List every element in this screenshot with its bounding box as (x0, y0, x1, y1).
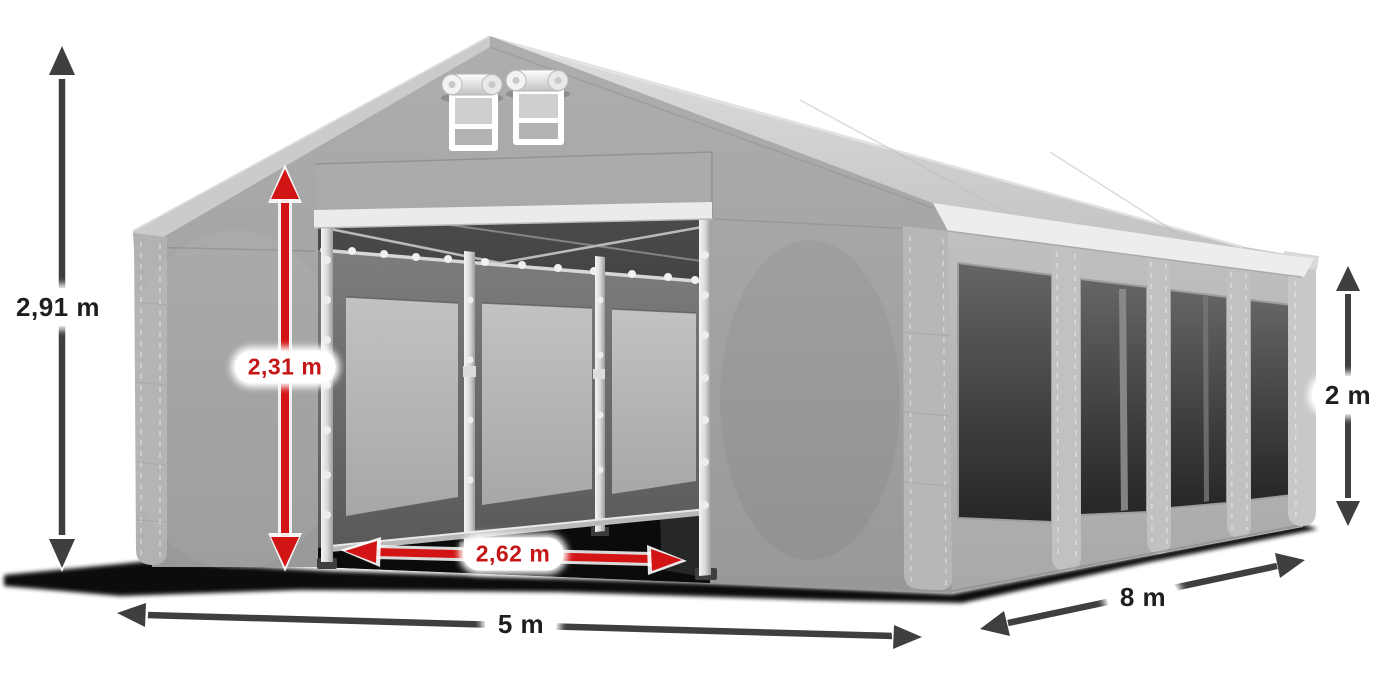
interior-pole-through-window (1203, 296, 1209, 502)
entrance-width-label: 2,62 m (463, 538, 564, 571)
tent-illustration (0, 0, 1400, 700)
entrance-interior (318, 222, 710, 583)
gable-vent-right (506, 70, 570, 145)
tent-side-wall (933, 203, 1319, 593)
side-window (1080, 279, 1147, 515)
total-height-label: 2,91 m (3, 288, 113, 326)
side-wall-strip (1052, 242, 1081, 571)
side-length-label: 8 m (1107, 578, 1179, 616)
interior-window-panel (346, 297, 458, 516)
entrance-opening (314, 202, 717, 583)
front-width-label: 5 m (485, 605, 557, 643)
side-window (958, 263, 1052, 522)
side-height-label: 2 m (1312, 376, 1384, 414)
side-window (1170, 290, 1227, 508)
entrance-height-label: 2,31 m (235, 351, 336, 384)
side-window (1250, 300, 1292, 500)
door-frame-pole-left (321, 221, 333, 562)
tent-dimension-diagram: 2,91 m 2,31 m 2,62 m 5 m 8 m 2 m (0, 0, 1400, 700)
gable-vent-left (441, 74, 503, 151)
interior-window-panel (482, 303, 592, 505)
interior-pole (464, 251, 475, 547)
door-frame-pole-right (699, 214, 711, 576)
interior-window-panel (612, 309, 696, 494)
